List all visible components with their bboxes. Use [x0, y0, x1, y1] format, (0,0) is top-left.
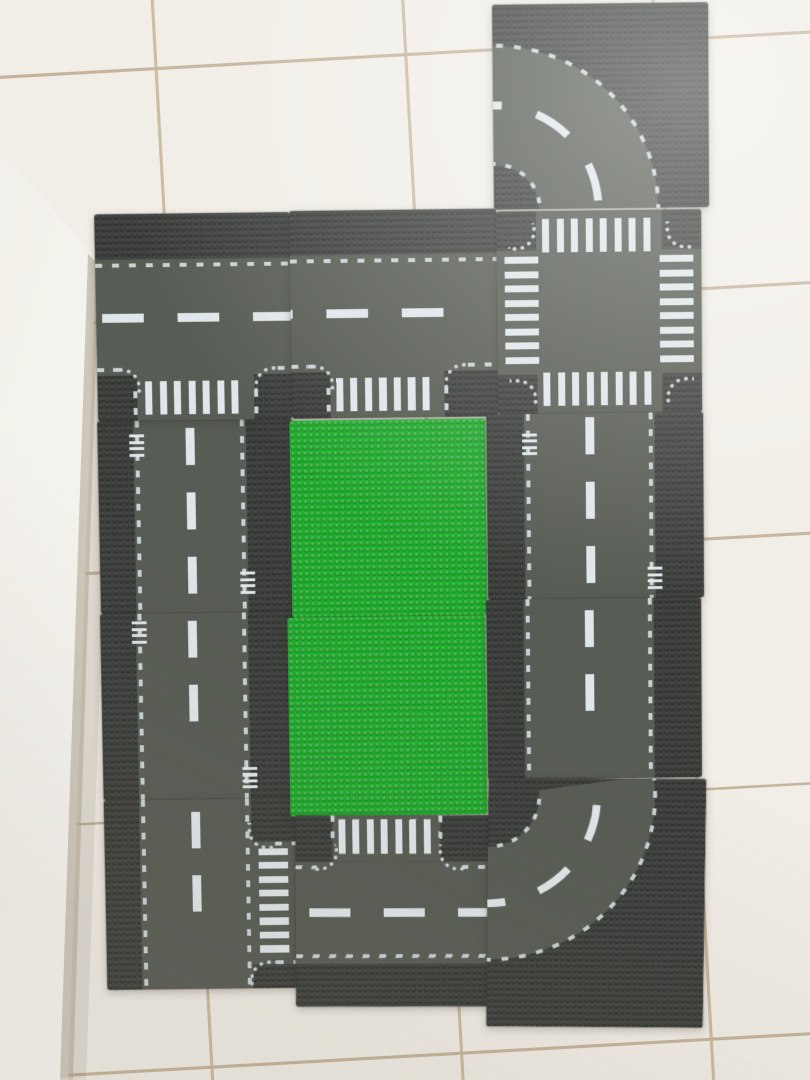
baseplate-assembly	[86, 0, 715, 1056]
junction-corner-line	[665, 221, 693, 249]
road-edge-line	[133, 391, 138, 420]
road-surface	[95, 258, 291, 376]
junction-corner-line	[508, 223, 536, 251]
road-surface	[139, 799, 254, 990]
zebra-crossing	[145, 380, 247, 415]
zebra-crossing	[336, 377, 435, 412]
road-marking-ladder	[648, 567, 663, 592]
photo-scene	[0, 0, 810, 1080]
road-edge-line	[444, 387, 448, 417]
plate-t-junction-top-right	[289, 209, 498, 419]
road-surface	[133, 419, 249, 613]
road-surface	[524, 412, 656, 599]
plate-t-junction-left-bottom	[104, 798, 301, 990]
road-surface	[290, 253, 498, 373]
zebra-crossing	[258, 848, 289, 955]
zebra-crossing	[504, 257, 539, 370]
junction-corner-line	[510, 379, 538, 407]
plate-straight-left-1	[97, 419, 295, 614]
road-edge-line	[438, 815, 442, 844]
road-edge-line	[278, 366, 292, 370]
plate-t-junction-bottom	[295, 815, 491, 1007]
plate-green-top	[289, 418, 487, 617]
curved-road-graphic	[492, 2, 709, 209]
road-marking-ladder	[522, 433, 537, 459]
plate-green-bottom	[287, 615, 487, 816]
curved-road-graphic	[486, 778, 706, 1028]
zebra-crossing	[338, 819, 434, 854]
plate-straight-right-1	[486, 412, 704, 600]
road-edge-line	[468, 362, 498, 366]
road-marking-ladder	[240, 571, 255, 596]
zebra-crossing	[543, 371, 656, 406]
road-surface	[135, 612, 250, 800]
road-edge-line	[331, 815, 335, 844]
plate-straight-right-2	[486, 597, 702, 779]
plate-crossroad	[496, 209, 702, 414]
road-marking-ladder	[242, 767, 257, 792]
plate-curve-bottom-right	[486, 778, 706, 1028]
plate-straight-left-2	[100, 612, 297, 801]
junction-corner-line	[666, 377, 694, 405]
plate-t-junction-top-left	[94, 212, 292, 421]
plate-curve-top-right	[492, 2, 709, 209]
road-edge-line	[326, 388, 330, 418]
zebra-crossing	[542, 218, 656, 253]
road-marking-ladder	[129, 434, 144, 460]
road-surface	[295, 861, 491, 964]
road-marking-ladder	[132, 621, 147, 646]
road-surface	[524, 598, 655, 779]
road-edge-line	[254, 390, 258, 419]
zebra-crossing	[660, 255, 694, 368]
